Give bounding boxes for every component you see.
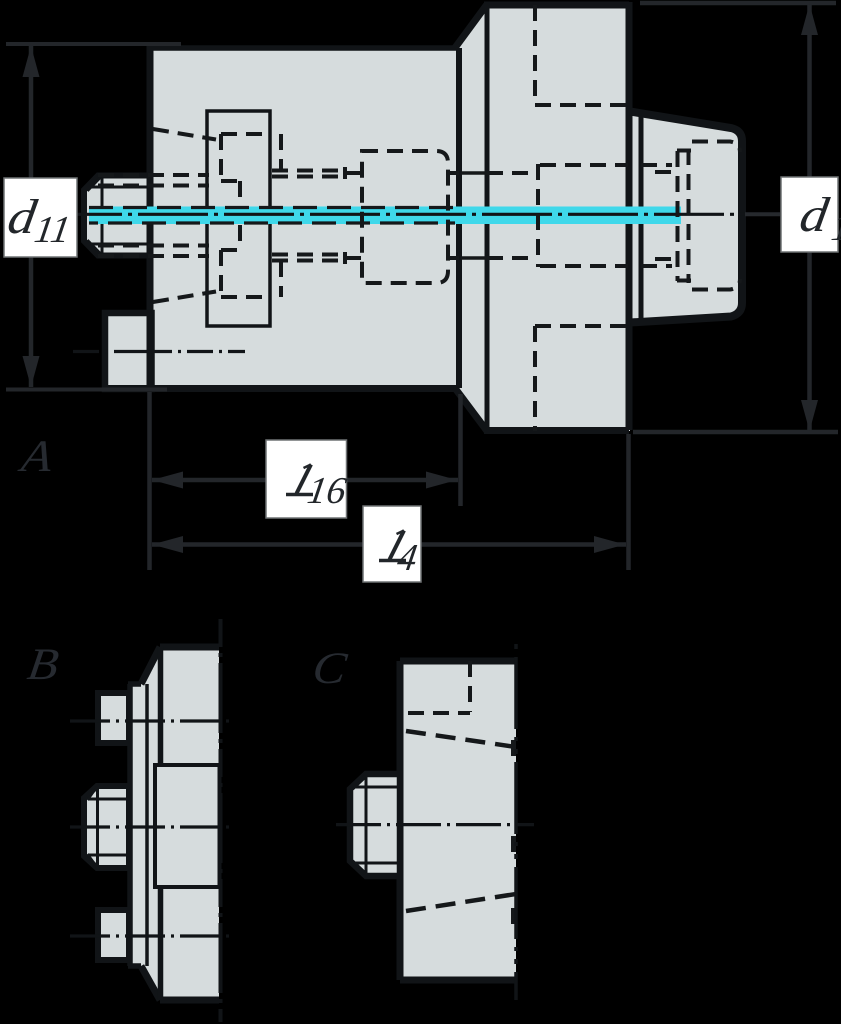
svg-text:11: 11 — [32, 209, 74, 251]
svg-text:16: 16 — [305, 470, 350, 512]
